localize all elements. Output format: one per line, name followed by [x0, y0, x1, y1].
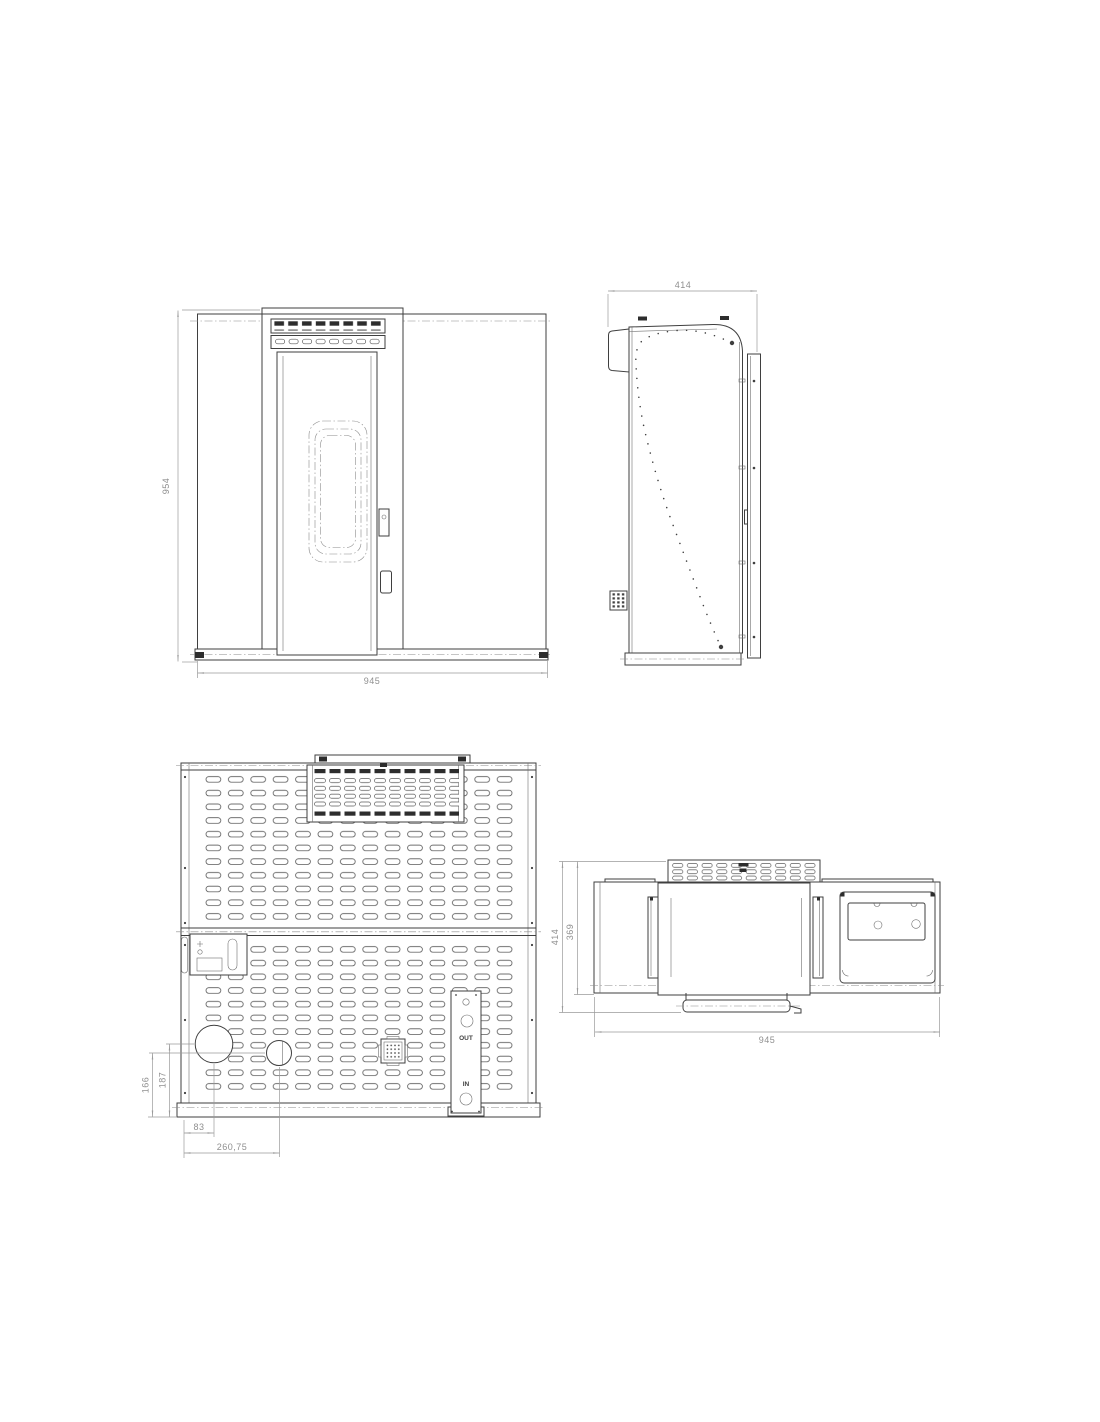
top-369-label: 369	[565, 924, 575, 941]
side-flue-box	[609, 329, 630, 372]
rear-83-label: 83	[193, 1122, 204, 1132]
side-body	[629, 316, 743, 653]
top-view: 414 369 945	[550, 840, 975, 1055]
top-firebox-outline	[658, 883, 810, 995]
rear-hydraulic-plate: OUT IN	[448, 991, 484, 1116]
side-door-panel	[745, 354, 761, 658]
rear-flue-outlet-large	[195, 1025, 233, 1063]
top-dim-depth-body: 369	[565, 862, 594, 995]
rear-166-label: 166	[141, 1077, 151, 1094]
rear-view: OUT IN 166 187 83 260,75	[140, 740, 595, 1170]
top-handle	[676, 993, 801, 1013]
side-base	[620, 653, 746, 665]
rear-187-label: 187	[158, 1072, 168, 1089]
rear-vent-grille	[307, 763, 464, 822]
front-height-label: 954	[161, 478, 171, 495]
rear-control-panel	[190, 934, 247, 975]
top-945-label: 945	[759, 1035, 776, 1045]
rear-air-inlet-small	[267, 1041, 292, 1066]
rear-top-bracket	[315, 755, 470, 763]
side-view: 414	[595, 280, 780, 695]
front-door	[277, 352, 377, 655]
front-dim-width: 945	[198, 661, 548, 686]
top-firebox	[648, 883, 823, 995]
rear-power-connector	[379, 1037, 408, 1066]
side-air-grille	[610, 591, 627, 610]
top-hopper-lid	[840, 892, 935, 983]
top-grille	[668, 860, 820, 882]
rear-base	[172, 1103, 544, 1117]
top-414-label: 414	[550, 929, 560, 946]
port-in-label: IN	[463, 1081, 470, 1088]
side-body-outline	[629, 324, 743, 653]
front-door-frame	[277, 352, 377, 655]
side-depth-label: 414	[675, 280, 692, 290]
port-out-label: OUT	[459, 1035, 473, 1042]
front-width-label: 945	[364, 676, 381, 686]
technical-drawing-canvas: 954 945	[0, 0, 1100, 1422]
front-right-panel	[403, 314, 546, 654]
rear-26075-label: 260,75	[217, 1142, 248, 1152]
front-view: 954 945	[140, 290, 610, 700]
front-left-panel	[198, 314, 263, 654]
